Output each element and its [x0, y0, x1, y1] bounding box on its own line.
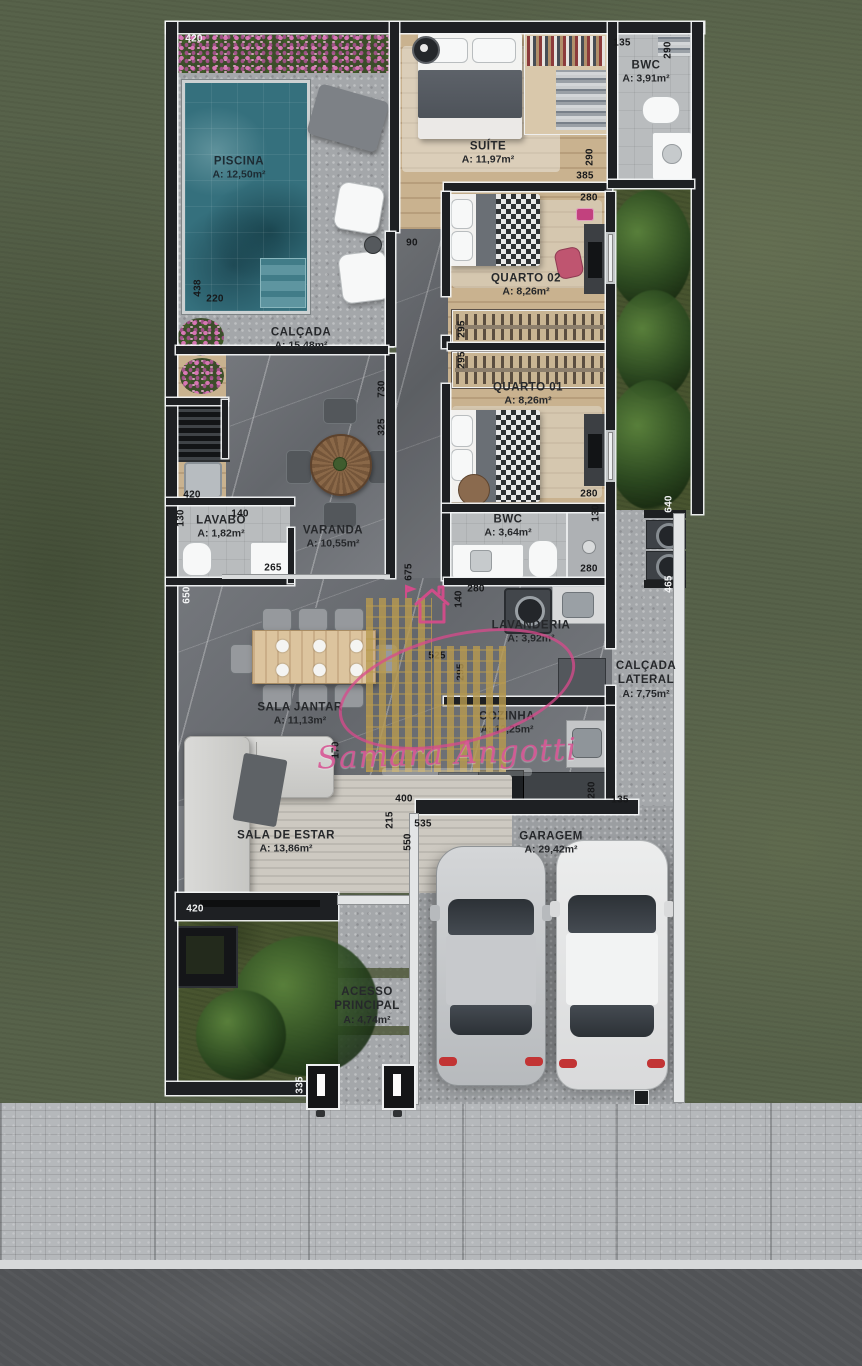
window — [606, 232, 615, 284]
suite-duvet — [418, 70, 522, 118]
car-windshield — [448, 899, 534, 935]
car-taillight — [439, 1057, 457, 1066]
car-rear-window — [570, 1005, 654, 1037]
room-name: QUARTO 02 — [491, 271, 561, 285]
dim-label: 420 — [186, 904, 204, 915]
room-name: GARAGEM — [519, 829, 583, 843]
room-name: SUÍTE — [462, 139, 515, 153]
wall — [444, 183, 612, 191]
soundbar — [200, 900, 320, 907]
dim-label: 140 — [231, 509, 249, 520]
table-centerpiece — [333, 457, 347, 471]
dining-chair — [262, 608, 292, 632]
room-area: A: 11,13m² — [257, 715, 342, 728]
dim-label: 280 — [587, 781, 598, 799]
pillow — [451, 231, 473, 261]
wall — [166, 578, 294, 585]
wall — [386, 232, 395, 346]
room-area: A: 7,75m² — [616, 688, 676, 701]
room-area: A: 15,48m² — [271, 340, 331, 353]
asphalt-road — [0, 1269, 862, 1366]
car-white — [556, 840, 668, 1090]
planter-soil — [186, 936, 224, 974]
pillow — [451, 199, 473, 229]
car-taillight — [525, 1057, 543, 1066]
car-windshield — [568, 895, 656, 933]
dim-label: 90 — [406, 238, 418, 249]
dim-label: 265 — [264, 563, 282, 574]
car-mirror — [550, 901, 560, 917]
palm-foliage — [606, 380, 696, 510]
dim-label: 280 — [467, 584, 485, 595]
quarto01-tv — [588, 434, 602, 468]
room-label-piscina: PISCINA A: 12,50m² — [212, 154, 265, 182]
boundary-wall — [674, 514, 684, 1102]
dim-label: 465 — [664, 575, 675, 593]
patio-chair — [286, 450, 312, 484]
room-name: QUARTO 01 — [493, 380, 563, 394]
dining-chair — [334, 608, 364, 632]
wall — [442, 192, 450, 296]
low-wall — [338, 896, 418, 904]
room-label-acesso: ACESSO PRINCIPAL A: 4,74m² — [334, 985, 400, 1027]
sofa-chaise-section — [184, 736, 250, 910]
dim-label: 280 — [580, 564, 598, 575]
bwc-suite-sink — [662, 144, 682, 164]
dim-label: 135 — [613, 38, 631, 49]
gate-post-slot — [393, 1074, 401, 1096]
room-label-bwc-suite: BWC A: 3,91m² — [622, 58, 669, 86]
tree-canopy — [196, 990, 286, 1080]
gate-hinge — [316, 1110, 325, 1117]
sliding-door-glass — [222, 574, 390, 579]
window — [606, 430, 615, 482]
room-area: A: 8,26m² — [493, 395, 563, 408]
dim-label: 280 — [580, 193, 598, 204]
room-area: A: 8,26m² — [491, 286, 561, 299]
pink-badge-icon — [576, 208, 594, 221]
dim-label: 130 — [176, 509, 187, 527]
place-settings — [258, 634, 368, 678]
hallway-floor — [396, 228, 448, 580]
wall — [606, 686, 615, 706]
room-name: ACESSO — [334, 985, 400, 999]
gate-post-slot — [317, 1074, 325, 1096]
room-name: LATERAL — [616, 673, 676, 687]
dim-label: 420 — [185, 34, 203, 45]
wall-end-post — [634, 1090, 649, 1105]
closet-shelves — [556, 70, 606, 130]
car-mirror — [430, 905, 440, 921]
dim-label: 335 — [295, 1076, 306, 1094]
room-area: A: 13,86m² — [237, 843, 335, 856]
sidewalk-pavers — [0, 1103, 862, 1263]
room-name: VARANDA — [303, 523, 363, 537]
dim-label: 650 — [182, 586, 193, 604]
wardrobe-rail — [455, 325, 605, 329]
wall — [608, 180, 694, 188]
lavabo-toilet — [182, 542, 212, 576]
wall — [606, 706, 615, 806]
room-name: PRINCIPAL — [334, 999, 400, 1013]
room-label-quarto02: QUARTO 02 A: 8,26m² — [491, 271, 561, 299]
room-label-garagem: GARAGEM A: 29,42m² — [519, 829, 583, 857]
car-taillight — [559, 1059, 577, 1068]
room-area: A: 12,50m² — [212, 169, 265, 182]
room-label-calcada: CALÇADA A: 15,48m² — [271, 325, 331, 353]
dim-label: 290 — [585, 148, 596, 166]
room-name: BWC — [484, 512, 531, 526]
room-name: SALA JANTAR — [257, 700, 342, 714]
wardrobe-rail — [455, 368, 605, 372]
dim-label: 420 — [183, 490, 201, 501]
dining-chair — [298, 608, 328, 632]
pillow — [472, 38, 516, 63]
closet-hanging-clothes — [527, 36, 605, 66]
curb — [0, 1260, 862, 1269]
room-area: A: 11,97m² — [462, 154, 515, 167]
garage-side-wall — [410, 814, 418, 1104]
quarto01-gingham-duvet — [496, 410, 540, 502]
car-mirror — [664, 901, 674, 917]
wall — [442, 504, 612, 512]
wall — [166, 22, 177, 1094]
floor-plan-render: PISCINA A: 12,50m² SUÍTE A: 11,97m² BWC … — [0, 0, 862, 1366]
dim-label: 215 — [385, 811, 396, 829]
bwc-sink — [470, 550, 492, 572]
dim-label: 135 — [611, 795, 629, 806]
suite-bed-fold — [418, 118, 522, 139]
room-label-calcada-lateral: CALÇADA LATERAL A: 7,75m² — [616, 659, 676, 701]
quarto02-gingham-duvet — [496, 194, 540, 266]
car-roof — [446, 935, 536, 1005]
bwc-suite-toilet — [642, 96, 680, 124]
dim-label: 535 — [414, 819, 432, 830]
dim-label: 640 — [664, 495, 675, 513]
room-label-varanda: VARANDA A: 10,55m² — [303, 523, 363, 551]
car-silver — [436, 846, 546, 1086]
room-label-quarto01: QUARTO 01 A: 8,26m² — [493, 380, 563, 408]
dim-label: 295 — [457, 351, 468, 369]
wall — [448, 343, 608, 350]
dim-label: 325 — [377, 418, 388, 436]
flower-bush — [180, 358, 224, 394]
car-roof — [566, 933, 658, 1005]
quarto01-chair — [458, 474, 490, 506]
room-name: SALA DE ESTAR — [237, 828, 335, 842]
quarto02-blanket — [476, 194, 496, 266]
pool-steps — [260, 258, 306, 308]
room-name: BWC — [622, 58, 669, 72]
dim-label: 550 — [403, 833, 414, 851]
room-name: PISCINA — [212, 154, 265, 168]
dim-label: 220 — [206, 294, 224, 305]
room-area: A: 3,91m² — [622, 73, 669, 86]
lounge-chair — [337, 249, 391, 304]
room-area: A: 3,64m² — [484, 527, 531, 540]
dim-label: 130 — [591, 504, 602, 522]
patio-chair — [323, 398, 357, 424]
bwc-toilet — [528, 540, 558, 578]
wall — [442, 384, 450, 580]
dim-label: 438 — [193, 279, 204, 297]
dim-label: 290 — [663, 41, 674, 59]
dining-chair — [230, 644, 254, 674]
dim-label: 675 — [404, 563, 415, 581]
wall — [222, 400, 228, 458]
wall — [166, 398, 228, 405]
laundry-sink — [562, 592, 594, 618]
side-table — [364, 236, 382, 254]
car-rear-window — [450, 1005, 532, 1035]
pillow — [451, 415, 473, 447]
quarto02-tv — [588, 242, 602, 278]
dim-label: 280 — [580, 489, 598, 500]
gate-hinge — [393, 1110, 402, 1117]
room-area: A: 1,82m² — [196, 528, 246, 541]
car-taillight — [647, 1059, 665, 1068]
wall — [692, 22, 703, 514]
dim-label: 295 — [457, 320, 468, 338]
shower-head-icon — [582, 540, 596, 554]
dim-label: 730 — [377, 380, 388, 398]
dim-label: 385 — [576, 171, 594, 182]
room-area: A: 29,42m² — [519, 844, 583, 857]
flower-bed — [176, 33, 394, 73]
room-label-suite: SUÍTE A: 11,97m² — [462, 139, 515, 167]
wardrobe-quarto02 — [452, 310, 608, 344]
room-label-bwc: BWC A: 3,64m² — [484, 512, 531, 540]
room-label-sala-jantar: SALA JANTAR A: 11,13m² — [257, 700, 342, 728]
room-label-sala-estar: SALA DE ESTAR A: 13,86m² — [237, 828, 335, 856]
wall — [390, 22, 399, 232]
house-outline-icon — [394, 580, 458, 630]
garage-front-wall — [416, 800, 638, 814]
room-name: CALÇADA — [271, 325, 331, 339]
lounge-chair — [332, 180, 386, 235]
room-area: A: 4,74m² — [334, 1014, 400, 1027]
room-name: CALÇADA — [616, 659, 676, 673]
wall — [166, 22, 704, 33]
wall-clock-face — [420, 44, 428, 52]
dim-label: 400 — [395, 794, 413, 805]
room-area: A: 10,55m² — [303, 538, 363, 551]
